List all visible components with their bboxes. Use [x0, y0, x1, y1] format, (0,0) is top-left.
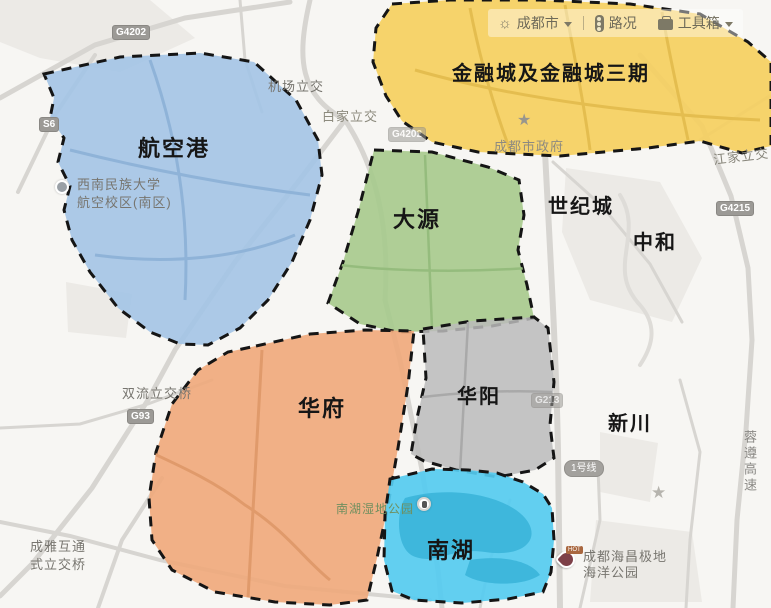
toolbox-menu[interactable]: 工具箱 — [658, 13, 733, 33]
metro-line1-badge: 1号线 — [564, 460, 604, 477]
road-badge-g4202-nw: G4202 — [112, 25, 150, 40]
toolbox-icon — [658, 19, 673, 30]
district-label-zhonghe: 中和 — [633, 226, 677, 255]
district-label-xinchuan: 新川 — [608, 407, 652, 436]
traffic-toggle-label: 路况 — [609, 13, 637, 33]
region-label-hangkonggang: 航空港 — [138, 131, 210, 163]
toolbox-menu-label: 工具箱 — [678, 13, 720, 33]
poi-rongzun-expressway: 蓉遵高速 — [740, 430, 759, 494]
toolbar-divider — [583, 16, 584, 30]
district-label-shijicheng: 世纪城 — [548, 190, 614, 219]
wetland-park-marker[interactable] — [417, 497, 431, 511]
poi-baijia-interchange: 白家立交 — [322, 106, 378, 125]
road-badge-g4202-mid: G4202 — [388, 127, 426, 142]
poi-university-line2: 航空校区(南区) — [77, 192, 172, 211]
poi-chengya-line1: 成雅互通 — [30, 536, 86, 555]
city-selector[interactable]: ☼ 成都市 — [498, 13, 572, 33]
traffic-light-icon — [595, 15, 604, 32]
poi-airport-interchange: 机场立交 — [268, 76, 324, 95]
road-badge-g93: G93 — [127, 409, 154, 424]
map-star-icon: ★ — [651, 483, 666, 503]
poi-shuangliu-interchange: 双流立交桥 — [122, 383, 192, 402]
poi-jiangjia-interchange: 江家立交 — [712, 143, 770, 169]
chevron-down-icon — [564, 22, 572, 27]
city-selector-label: 成都市 — [517, 13, 559, 33]
poi-city-government: 成都市政府 — [494, 136, 564, 155]
map-toolbar: ☼ 成都市 路况 工具箱 — [488, 9, 743, 37]
region-label-jinrongcheng: 金融城及金融城三期 — [452, 57, 650, 86]
university-poi-marker[interactable] — [55, 180, 69, 194]
map-canvas[interactable]: 航空港 金融城及金融城三期 大源 华府 华阳 南湖 世纪城 中和 新川 机场立交… — [0, 0, 771, 608]
region-label-huayang: 华阳 — [457, 380, 501, 409]
region-label-huafu: 华府 — [298, 391, 346, 423]
chevron-down-icon — [725, 22, 733, 27]
government-star-icon: ★ — [517, 110, 531, 130]
weather-sun-icon: ☼ — [498, 15, 512, 32]
poi-university-line1: 西南民族大学 — [77, 174, 161, 193]
traffic-toggle[interactable]: 路况 — [595, 13, 637, 33]
poi-chengya-line2: 式立交桥 — [30, 554, 86, 573]
road-badge-s6: S6 — [39, 117, 59, 132]
poi-nanhu-wetland-park: 南湖湿地公园 — [336, 500, 414, 517]
region-label-dayuan: 大源 — [393, 202, 441, 234]
poi-ocean-park-line2: 海洋公园 — [583, 562, 639, 581]
labels-layer: 航空港 金融城及金融城三期 大源 华府 华阳 南湖 世纪城 中和 新川 机场立交… — [0, 0, 771, 608]
hot-tag: HOT — [566, 546, 583, 554]
road-badge-g213: G213 — [531, 393, 563, 408]
region-label-nanhu: 南湖 — [427, 533, 475, 565]
road-badge-g4215: G4215 — [716, 201, 754, 216]
